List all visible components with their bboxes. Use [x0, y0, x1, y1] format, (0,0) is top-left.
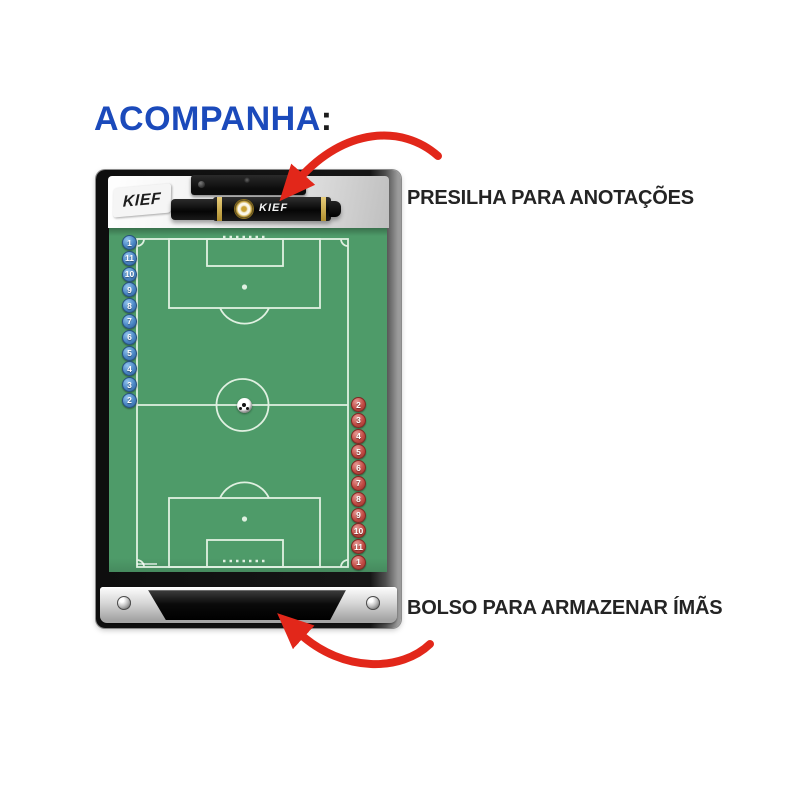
screw-icon — [366, 596, 380, 610]
blue-magnet-column: 1111098765432 — [122, 235, 137, 408]
soccer-field: 1111098765432 2345678910111 — [109, 228, 387, 572]
red-player-magnet: 9 — [351, 508, 366, 523]
magnet-pocket — [148, 590, 346, 620]
red-player-magnet: 4 — [351, 429, 366, 444]
product-photo-tactics-board: KIEF KIEF — [96, 170, 401, 628]
pocket-arrow-icon — [299, 633, 430, 664]
screw-icon — [198, 181, 205, 188]
red-magnet-column: 2345678910111 — [351, 397, 366, 570]
field-fineprint — [137, 563, 157, 569]
paper-clip — [191, 175, 306, 195]
screw-icon — [244, 177, 250, 183]
page-title-colon: : — [321, 100, 333, 138]
red-player-magnet: 5 — [351, 444, 366, 459]
red-player-magnet: 1 — [351, 555, 366, 570]
red-player-magnet: 11 — [351, 539, 366, 554]
marker-pen: KIEF — [171, 197, 341, 221]
red-player-magnet: 6 — [351, 460, 366, 475]
brand-logo: KIEF — [113, 183, 171, 217]
red-player-magnet: 7 — [351, 476, 366, 491]
page-title-text: ACOMPANHA — [94, 100, 321, 138]
soccer-ball-magnet — [237, 398, 252, 413]
blue-player-magnet: 8 — [122, 298, 137, 313]
pen-gold-band — [321, 197, 326, 221]
blue-player-magnet: 10 — [122, 267, 137, 282]
red-player-magnet: 10 — [351, 523, 366, 538]
blue-player-magnet: 6 — [122, 330, 137, 345]
clip-callout-label: PRESILHA PARA ANOTAÇÕES — [407, 187, 694, 210]
blue-player-magnet: 11 — [122, 251, 137, 266]
blue-player-magnet: 3 — [122, 377, 137, 392]
pen-logo-icon — [235, 200, 253, 218]
screw-icon — [292, 181, 299, 188]
pen-cap — [171, 199, 215, 220]
screw-icon — [117, 596, 131, 610]
blue-player-magnet: 7 — [122, 314, 137, 329]
pocket-callout-label: BOLSO PARA ARMAZENAR ÍMÃS — [407, 597, 722, 620]
magnet-storage-bar — [100, 587, 397, 623]
blue-player-magnet: 2 — [122, 393, 137, 408]
pen-tip — [329, 201, 341, 217]
pen-brand-label: KIEF — [259, 202, 288, 214]
red-player-magnet: 8 — [351, 492, 366, 507]
blue-player-magnet: 1 — [122, 235, 137, 250]
blue-player-magnet: 4 — [122, 361, 137, 376]
red-player-magnet: 3 — [351, 413, 366, 428]
blue-player-magnet: 5 — [122, 346, 137, 361]
blue-player-magnet: 9 — [122, 282, 137, 297]
red-player-magnet: 2 — [351, 397, 366, 412]
page-title: ACOMPANHA: — [94, 100, 333, 139]
pen-gold-band — [217, 197, 222, 221]
